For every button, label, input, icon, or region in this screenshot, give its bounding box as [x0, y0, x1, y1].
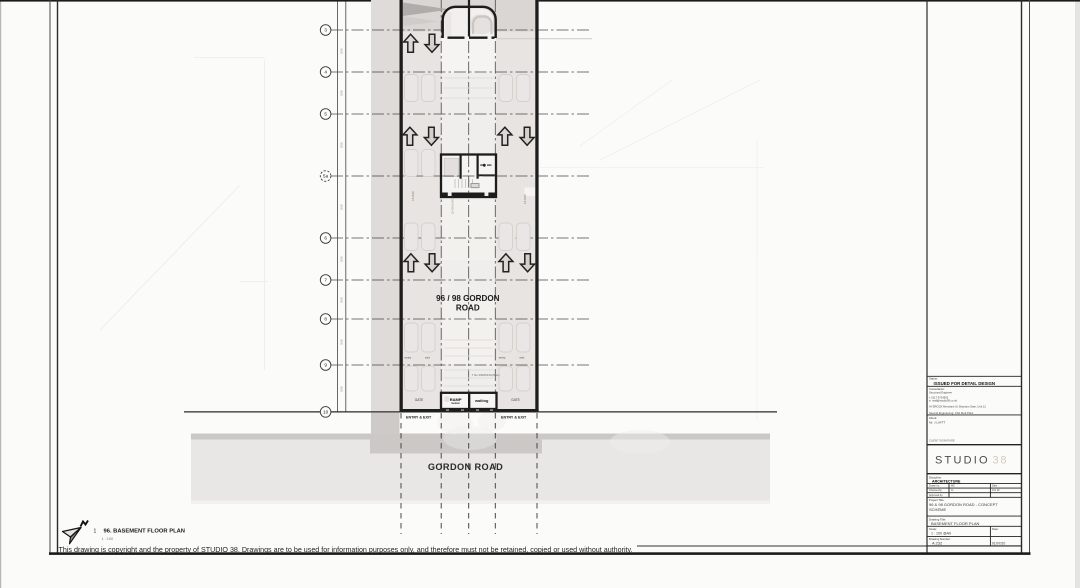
svg-text:5500: 5500 — [339, 142, 343, 148]
svg-text:5500: 5500 — [339, 386, 343, 392]
svg-text:1 : 100: 1 : 100 — [102, 537, 114, 541]
svg-text:3: 3 — [324, 28, 327, 33]
svg-text:MS: MS — [951, 485, 955, 488]
svg-text:ISSUED FOR DETAIL DESIGN: ISSUED FOR DETAIL DESIGN — [934, 381, 996, 386]
svg-text:SCHEME: SCHEME — [929, 507, 946, 512]
svg-text:Approved by:: Approved by: — [929, 494, 943, 497]
svg-text:5500: 5500 — [339, 297, 343, 303]
svg-text:GATE: GATE — [511, 398, 519, 402]
svg-text:Drawn by:: Drawn by: — [929, 485, 940, 488]
svg-text:entry: entry — [499, 356, 506, 360]
svg-text:exit: exit — [520, 356, 525, 360]
svg-text:5500: 5500 — [339, 48, 343, 54]
svg-text:5a: 5a — [323, 174, 329, 179]
svg-text:8: 8 — [324, 317, 327, 322]
svg-text:Date:: Date: — [992, 527, 999, 531]
svg-text:Second Engineering: CSA M+E Pl: Second Engineering: CSA M+E Plant — [929, 411, 974, 415]
svg-text:Structural Engineer: Structural Engineer — [929, 391, 952, 395]
svg-text:5500: 5500 — [339, 256, 343, 262]
svg-text:STUDIO: STUDIO — [935, 454, 990, 466]
svg-text:CLIENT SIGNATURE: CLIENT SIGNATURE — [929, 439, 955, 443]
svg-text:ARCHITECTURE: ARCHITECTURE — [932, 480, 961, 484]
svg-text:GORDON ROAD: GORDON ROAD — [428, 462, 503, 472]
svg-text:Checked by:: Checked by: — [929, 489, 943, 492]
svg-text:Scale:: Scale: — [929, 527, 937, 531]
svg-text:BASEMENT FLOOR PLAN: BASEMENT FLOOR PLAN — [931, 521, 979, 526]
svg-text:5500: 5500 — [339, 204, 343, 210]
svg-text:96. BASEMENT FLOOR PLAN: 96. BASEMENT FLOOR PLAN — [104, 529, 186, 535]
svg-text:A 232: A 232 — [932, 541, 943, 546]
svg-text:7 No PARKING(6No): 7 No PARKING(6No) — [472, 373, 500, 377]
svg-text:exit: exit — [425, 356, 430, 360]
svg-text:ENTRY & EXIT: ENTRY & EXIT — [501, 415, 527, 419]
svg-text:1: 1 — [94, 529, 97, 535]
svg-text:6: 6 — [324, 236, 327, 241]
svg-text:Client:: Client: — [929, 416, 937, 420]
svg-text:Date:: Date: — [992, 485, 998, 488]
svg-text:5500: 5500 — [339, 339, 343, 345]
svg-text:1B 4500: 1B 4500 — [411, 191, 415, 201]
svg-text:1B 4500: 1B 4500 — [523, 194, 527, 204]
svg-text:5: 5 — [324, 112, 327, 117]
svg-text:ROAD: ROAD — [456, 304, 480, 313]
svg-text:9: 9 — [324, 363, 327, 368]
svg-text:GATE: GATE — [415, 398, 423, 402]
svg-text:HYDROCK Merchant St. Brandon G: HYDROCK Merchant St. Brandon Gate, Unit … — [929, 405, 986, 409]
svg-text:7: 7 — [324, 278, 327, 283]
svg-text:10: 10 — [323, 410, 329, 415]
svg-text:This drawing is copyright and: This drawing is copyright and the proper… — [59, 546, 633, 554]
svg-text:38: 38 — [993, 454, 1009, 466]
svg-text:e: mail@studio38.co.uk: e: mail@studio38.co.uk — [929, 398, 958, 402]
svg-text:JUL 20: JUL 20 — [992, 489, 1000, 492]
svg-text:5500: 5500 — [339, 90, 343, 96]
svg-text:waiting: waiting — [474, 398, 489, 403]
svg-text:1B 4500x2400: 1B 4500x2400 — [451, 197, 455, 214]
svg-text:below: below — [451, 401, 460, 405]
svg-text:Consultants:: Consultants: — [929, 387, 945, 391]
svg-text:1 : 100 @A0: 1 : 100 @A0 — [931, 532, 951, 536]
svg-text:01/07/20: 01/07/20 — [992, 541, 1005, 545]
svg-text:96 / 98 GORDON: 96 / 98 GORDON — [436, 294, 500, 303]
svg-text:Mr. J LAFTT: Mr. J LAFTT — [929, 420, 946, 424]
svg-text:4: 4 — [324, 70, 327, 75]
svg-text:entry: entry — [405, 356, 412, 360]
svg-text:ENTRY & EXIT: ENTRY & EXIT — [406, 415, 432, 419]
